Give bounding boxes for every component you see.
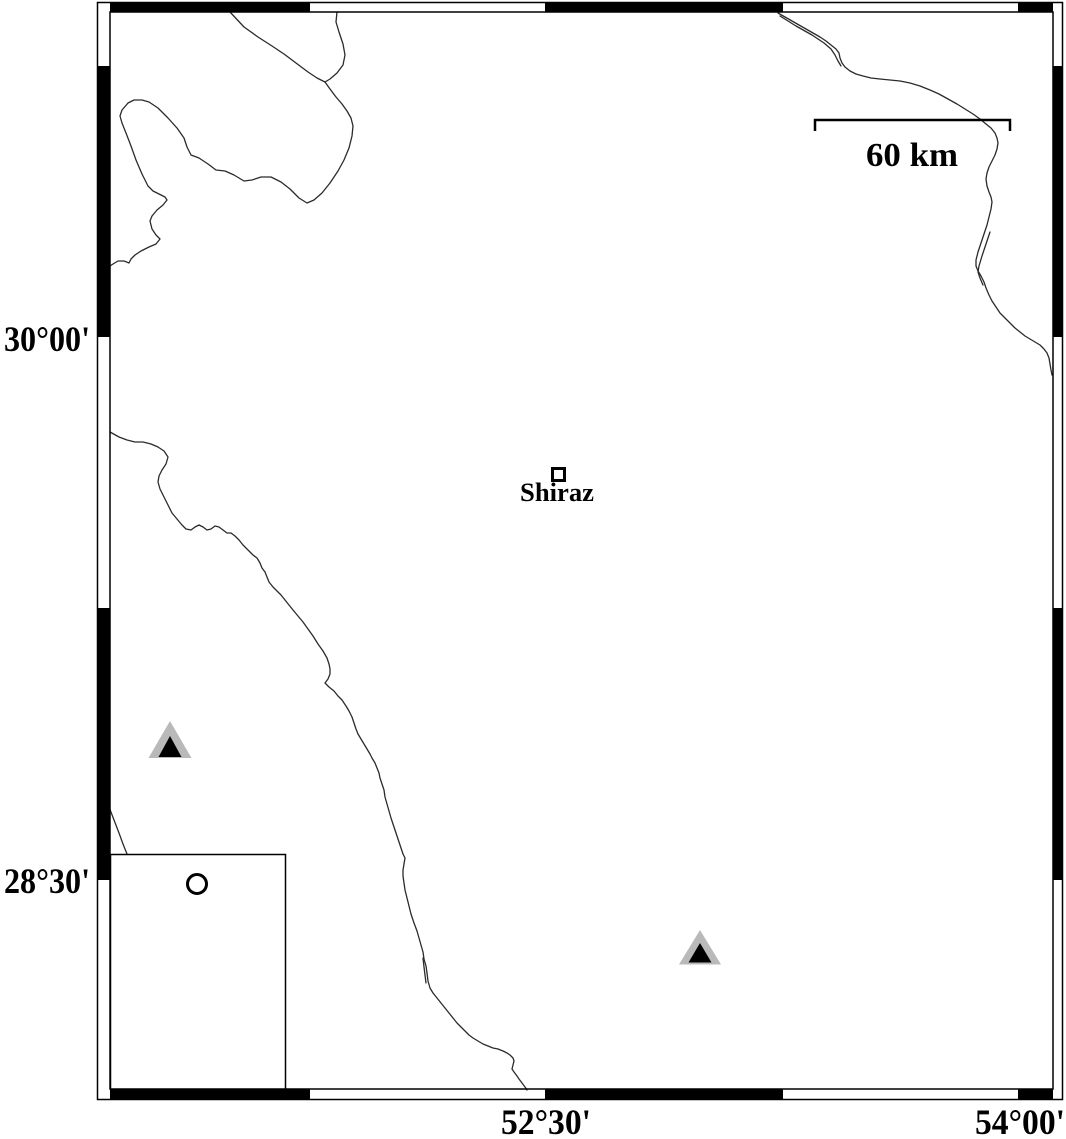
axis-label-lat-28-30: 28°30' [4,861,90,901]
city-label: Shiraz [520,478,594,507]
scale-bar-label: 60 km [866,137,958,174]
map-figure: 60 km Shiraz 30°00' 28°30' 52°30' 54°00' [0,0,1066,1139]
axis-label-lon-54-00: 54°00' [975,1102,1065,1139]
map-canvas: 60 km Shiraz 30°00' 28°30' 52°30' 54°00' [0,0,1066,1139]
axis-label-lat-30-00: 30°00' [4,319,90,359]
axis-label-lon-52-30: 52°30' [501,1102,591,1139]
event-circle-marker [188,875,207,894]
